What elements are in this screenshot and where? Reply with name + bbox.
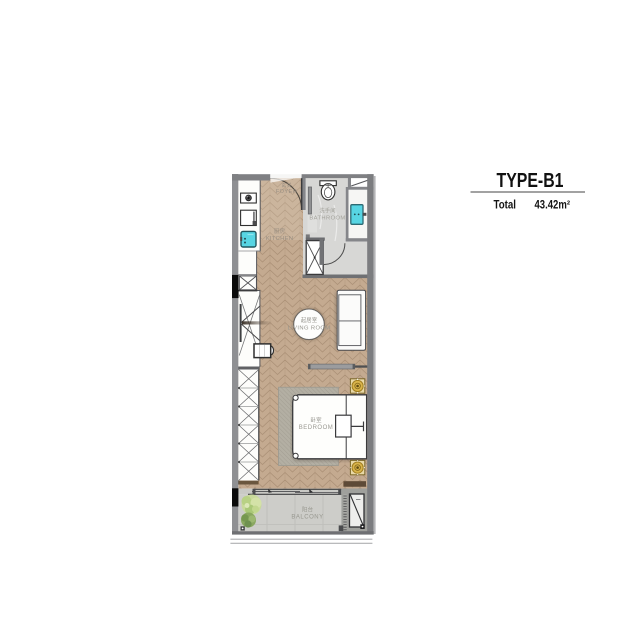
svg-text:洗手间: 洗手间 xyxy=(319,207,335,215)
svg-text:起居室: 起居室 xyxy=(301,316,318,324)
svg-text:玄关: 玄关 xyxy=(281,181,291,189)
svg-text:FOYER: FOYER xyxy=(276,189,297,195)
svg-text:厨房: 厨房 xyxy=(274,227,286,235)
svg-text:LIVING ROOM: LIVING ROOM xyxy=(287,326,330,332)
svg-text:KITCHEN: KITCHEN xyxy=(266,236,294,242)
svg-text:BEDROOM: BEDROOM xyxy=(299,425,334,431)
svg-text:TYPE-B1: TYPE-B1 xyxy=(497,169,564,192)
svg-text:BALCONY: BALCONY xyxy=(291,515,323,521)
svg-text:阳台: 阳台 xyxy=(302,506,314,514)
svg-text:卧室: 卧室 xyxy=(310,416,322,424)
svg-text:Total: Total xyxy=(494,200,517,212)
svg-text:43.42m²: 43.42m² xyxy=(535,200,571,212)
svg-text:BATHROOM: BATHROOM xyxy=(309,216,345,222)
